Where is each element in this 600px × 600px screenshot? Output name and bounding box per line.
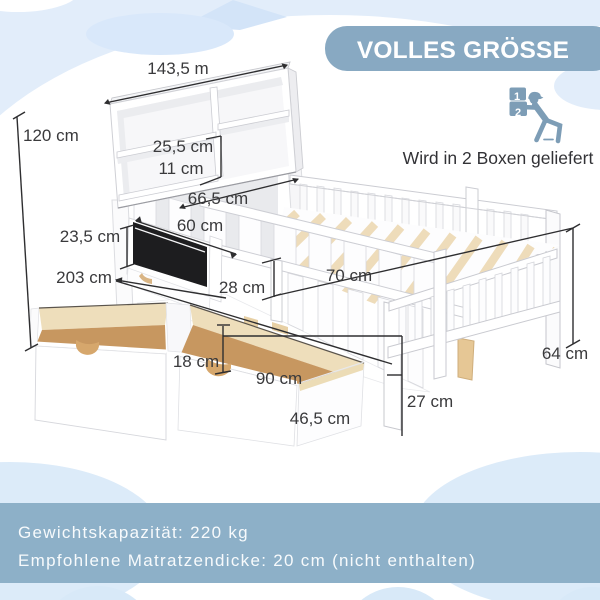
svg-text:18 cm: 18 cm [173, 352, 219, 371]
svg-text:VOLLES GRÖSSE: VOLLES GRÖSSE [357, 37, 569, 64]
svg-text:23,5 cm: 23,5 cm [60, 227, 120, 246]
svg-text:11 cm: 11 cm [158, 159, 203, 178]
svg-text:46,5 cm: 46,5 cm [290, 409, 350, 428]
svg-text:60 cm: 60 cm [177, 216, 223, 235]
svg-text:28 cm: 28 cm [219, 278, 265, 297]
svg-text:25,5 cm: 25,5 cm [153, 137, 213, 156]
svg-text:70 cm: 70 cm [326, 266, 372, 285]
svg-text:203 cm: 203 cm [56, 268, 112, 287]
svg-text:66,5 cm: 66,5 cm [188, 189, 248, 208]
svg-text:Wird in 2 Boxen geliefert: Wird in 2 Boxen geliefert [403, 148, 594, 168]
svg-text:Empfohlene Matratzendicke: 20: Empfohlene Matratzendicke: 20 cm (nicht … [18, 551, 476, 570]
svg-text:64 cm: 64 cm [542, 344, 588, 363]
svg-text:2: 2 [515, 107, 521, 119]
svg-text:90 cm: 90 cm [256, 369, 302, 388]
svg-text:143,5 m: 143,5 m [147, 59, 208, 78]
svg-text:27 cm: 27 cm [407, 392, 453, 411]
svg-text:120 cm: 120 cm [23, 126, 79, 145]
svg-text:Gewichtskapazität: 220 kg: Gewichtskapazität: 220 kg [18, 523, 249, 542]
svg-text:1: 1 [514, 91, 520, 103]
